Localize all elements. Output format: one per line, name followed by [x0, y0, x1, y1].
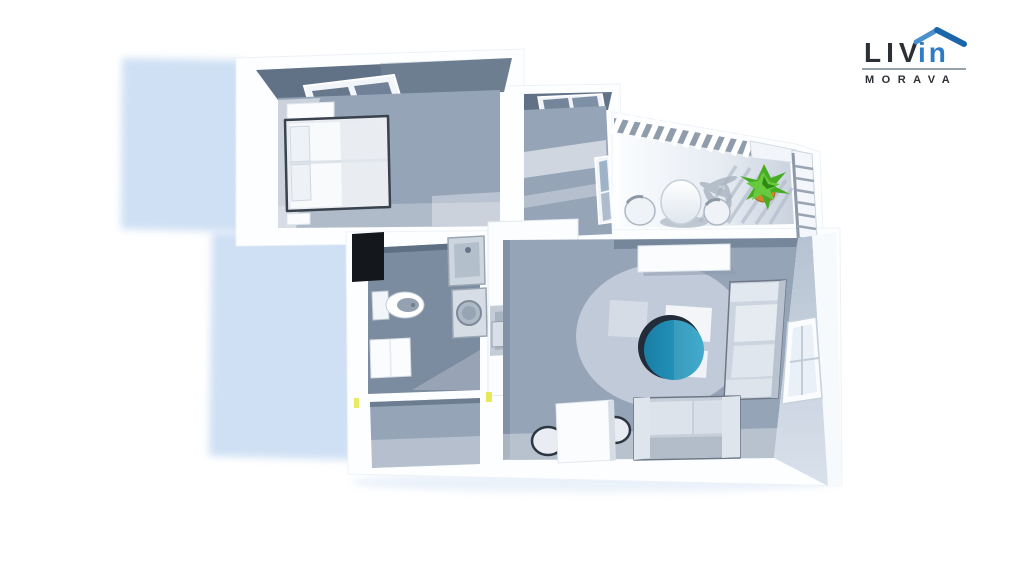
sofa-arm	[730, 282, 785, 302]
living-wall-shade-left	[503, 240, 510, 460]
second-room	[524, 92, 613, 238]
living-room-window	[782, 317, 822, 404]
sofa-arm	[722, 396, 740, 458]
hallway-floor-light	[370, 436, 480, 468]
washer-door-inner	[462, 306, 476, 320]
balcony-chair-left	[625, 197, 655, 225]
sofa-cushion	[650, 401, 692, 435]
logo-tagline: MORAVA	[865, 74, 957, 86]
sofa-bottom	[634, 396, 740, 460]
bed-duvet-shade	[340, 120, 387, 206]
bathroom-cabinet	[370, 338, 411, 378]
door-handle-yellow	[354, 398, 359, 408]
balcony-chair-right	[704, 199, 730, 225]
logo: LIV in MORAVA	[862, 30, 966, 86]
sofa-cushion	[694, 400, 724, 434]
steel-sink	[448, 236, 485, 286]
door-handle-yellow	[486, 392, 492, 402]
sink-faucet	[465, 247, 471, 253]
closet-niche	[352, 232, 384, 282]
hallway	[354, 392, 492, 468]
bathroom	[352, 232, 487, 394]
nightstand	[287, 213, 310, 225]
bedroom	[256, 58, 512, 228]
sofa-arm	[725, 378, 779, 398]
sofa-cushion	[734, 304, 779, 342]
sofa-cushion	[731, 344, 776, 378]
shadow-upper-left	[121, 58, 244, 232]
sofa-right	[724, 280, 786, 400]
dining-table-top	[556, 400, 614, 463]
toilet	[372, 291, 424, 320]
bed-pillow	[290, 126, 310, 162]
logo-word-accent: in	[918, 37, 949, 68]
cabinet-door-line	[390, 339, 391, 377]
balcony-round-table	[661, 180, 701, 224]
floorplan-render: LIV in MORAVA	[0, 0, 1024, 576]
second-room-side-window	[595, 156, 613, 224]
living-room	[503, 232, 842, 486]
toilet-bowl-inner	[397, 298, 419, 312]
toilet-drain	[411, 303, 415, 307]
sideboard-body	[638, 244, 730, 272]
sofa-arm	[634, 397, 650, 460]
sideboard	[638, 244, 736, 276]
bed-pillow	[291, 164, 311, 201]
floorplan-scene: LIV in MORAVA	[0, 0, 1024, 576]
double-bed	[285, 116, 390, 211]
shadow-lower-left	[209, 232, 354, 460]
washing-machine	[452, 288, 487, 338]
